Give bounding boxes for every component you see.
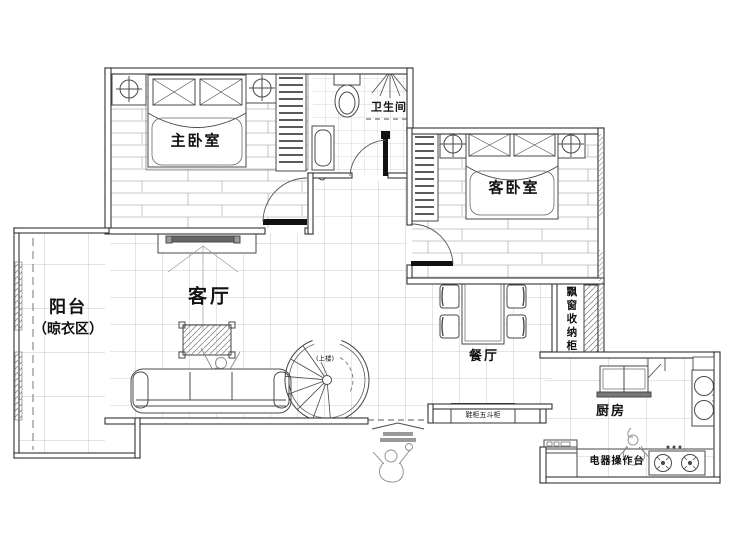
wardrobe [276, 71, 306, 171]
kitchen-shelf [544, 440, 577, 478]
room-label-master-bedroom: 主卧室 [170, 131, 221, 152]
annotation-appliance-counter: 电器操作台 [590, 455, 645, 469]
guest-bed [466, 131, 558, 219]
annotation-stair-direction: (上楼) [316, 354, 334, 363]
wardrobe [412, 131, 438, 221]
balcony-sub-label: （晾衣区） [33, 320, 103, 340]
sofa [131, 369, 291, 413]
room-label-bathroom: 卫生间 [371, 99, 407, 114]
balcony-floor [19, 233, 105, 453]
dining-table [462, 280, 504, 344]
toilet [334, 74, 360, 117]
entry-mat [372, 423, 424, 429]
room-label-guest-bedroom: 客卧室 [488, 178, 539, 199]
room-label-balcony: 阳台 （晾衣区） [33, 296, 103, 339]
balcony-main-label: 阳台 [33, 296, 103, 320]
tv-cabinet [158, 233, 256, 253]
coffee-table [179, 322, 235, 358]
floor-plan-drawing [0, 0, 740, 555]
room-label-kitchen: 厨房 [596, 403, 626, 421]
annotation-shoe-cabinet: 鞋柜五斗柜 [466, 411, 501, 421]
person-figure [373, 444, 413, 483]
bay-window-cabinet [584, 285, 598, 353]
floor-plan: 主卧室 卫生间 客卧室 阳台 （晾衣区） 客厅 餐厅 厨房 飘窗收纳柜 电器操作… [0, 0, 740, 555]
master-bed [148, 75, 246, 167]
kitchen-counter-top [597, 366, 651, 397]
room-label-dining-room: 餐厅 [469, 348, 499, 366]
room-label-living-room: 客厅 [188, 284, 232, 311]
annotation-bay-window-cabinet: 飘窗收纳柜 [564, 286, 579, 354]
